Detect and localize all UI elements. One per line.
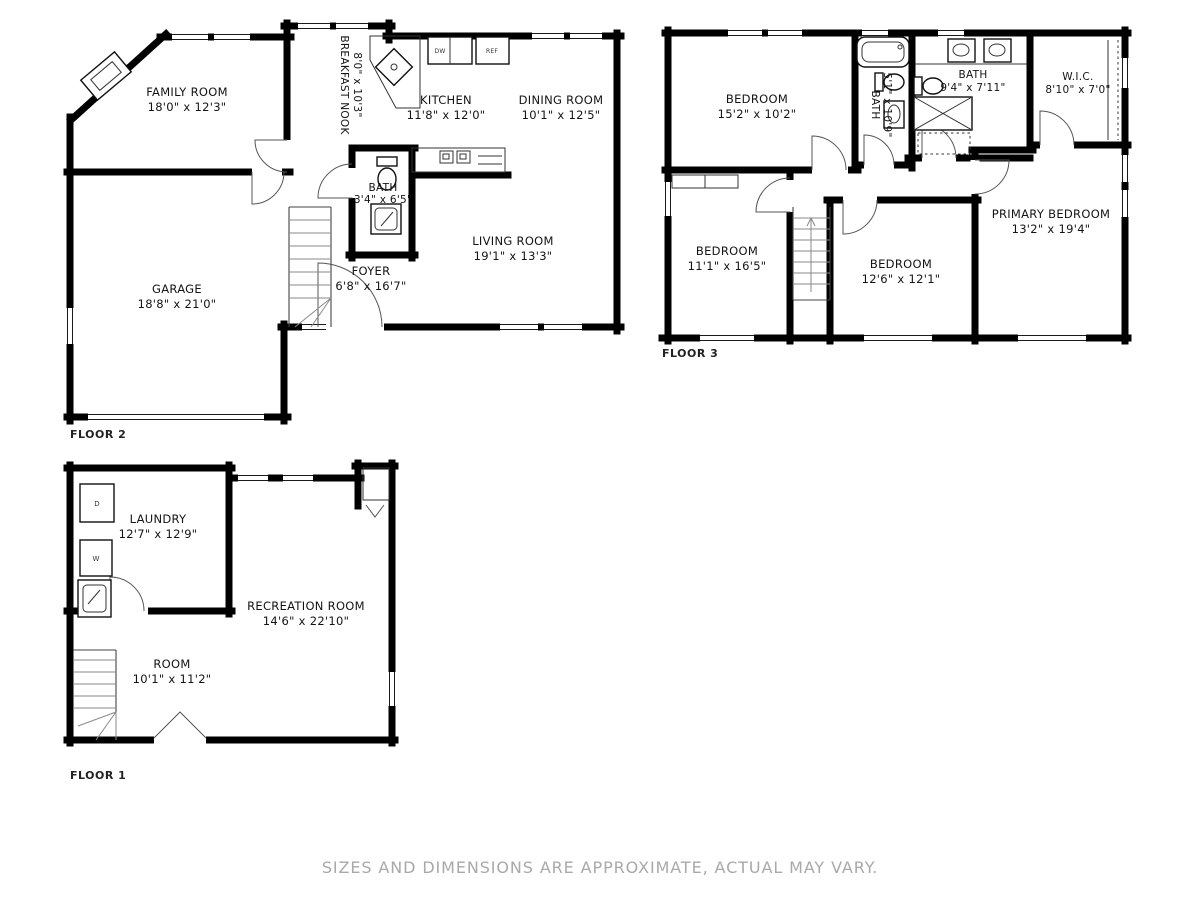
floor3-stairs [793, 207, 830, 300]
kitchen-corner-counter [370, 36, 420, 108]
floor1-windows [238, 476, 395, 707]
dryer-label: D [94, 500, 100, 508]
toilet-icon [914, 77, 922, 95]
vanity-sink-icon [984, 39, 1011, 62]
bath-small-dims: 5'1" x 10'9" [881, 72, 893, 137]
floor1-stairs [73, 650, 116, 740]
refrigerator-icon: REF [476, 37, 509, 64]
refrigerator-label: REF [486, 48, 498, 55]
bath-large-name: BATH [958, 69, 987, 81]
vanity-sink-icon [948, 39, 975, 62]
garage-name: GARAGE [152, 282, 202, 296]
floorplan-page: DW REF FAMILY ROOM 18'0" x 12'3" BREAKFA… [0, 0, 1200, 900]
bedroom2-dims: 11'1" x 16'5" [688, 259, 767, 273]
washer-label: W [92, 555, 99, 563]
dining-room-dims: 10'1" x 12'5" [522, 108, 601, 122]
washer-icon: W [80, 540, 112, 576]
toilet-icon [377, 157, 397, 166]
laundry-name: LAUNDRY [130, 512, 187, 526]
room-dims: 10'1" x 11'2" [133, 672, 212, 686]
family-room-dims: 18'0" x 12'3" [148, 100, 227, 114]
floor3-label: FLOOR 3 [662, 347, 718, 360]
foyer-name: FOYER [352, 264, 391, 278]
wic-dims: 8'10" x 7'0" [1045, 84, 1110, 96]
room-name: ROOM [153, 657, 190, 671]
shower-icon [914, 97, 972, 130]
dining-room-name: DINING ROOM [519, 93, 604, 107]
bath-large-dims: 9'4" x 7'11" [940, 82, 1005, 94]
wic-name: W.I.C. [1062, 71, 1093, 83]
dishwasher-label: DW [435, 48, 446, 55]
living-room-dims: 19'1" x 13'3" [474, 249, 553, 263]
bedroom3-name: BEDROOM [870, 257, 932, 271]
dishwasher-icon: DW [428, 37, 472, 64]
hall-closet [918, 133, 970, 154]
floor2-windows [68, 24, 603, 420]
bedroom2-name: BEDROOM [696, 244, 758, 258]
bath2-name: BATH [368, 182, 397, 194]
kitchen-dims: 11'8" x 12'0" [407, 108, 486, 122]
laundry-dims: 12'7" x 12'9" [119, 527, 198, 541]
fireplace-icon [81, 52, 131, 100]
floor3-labels: BEDROOM 15'2" x 10'2" BATH 5'1" x 10'9" … [662, 69, 1111, 360]
bath-small-name: BATH [869, 90, 881, 119]
bedroom1-dims: 15'2" x 10'2" [718, 107, 797, 121]
living-room-name: LIVING ROOM [472, 234, 554, 248]
floor2-stairs [289, 207, 331, 327]
floorplan-canvas: DW REF FAMILY ROOM 18'0" x 12'3" BREAKFA… [0, 0, 1200, 900]
kitchen-name: KITCHEN [420, 93, 472, 107]
primary-bedroom-dims: 13'2" x 19'4" [1012, 222, 1091, 236]
foyer-dims: 6'8" x 16'7" [335, 279, 406, 293]
garage-dims: 18'8" x 21'0" [138, 297, 217, 311]
recreation-room-dims: 14'6" x 22'10" [263, 614, 349, 628]
floor3-plan: BEDROOM 15'2" x 10'2" BATH 5'1" x 10'9" … [662, 30, 1128, 360]
breakfast-nook-dims: 8'0" x 10'3" [351, 52, 363, 117]
bath2-dims: 3'4" x 6'5" [354, 194, 412, 206]
family-room-name: FAMILY ROOM [146, 85, 228, 99]
bedroom3-dims: 12'6" x 12'1" [862, 272, 941, 286]
laundry-sink-icon [78, 580, 111, 617]
floor2-label: FLOOR 2 [70, 428, 126, 441]
floor2-plan: DW REF FAMILY ROOM 18'0" x 12'3" BREAKFA… [67, 23, 621, 441]
dryer-icon: D [80, 484, 114, 522]
recreation-room-name: RECREATION ROOM [247, 599, 365, 613]
floor2-labels: FAMILY ROOM 18'0" x 12'3" BREAKFAST NOOK… [70, 35, 603, 441]
breakfast-nook-name: BREAKFAST NOOK [338, 35, 350, 135]
bedroom1-name: BEDROOM [726, 92, 788, 106]
disclaimer-text: SIZES AND DIMENSIONS ARE APPROXIMATE, AC… [322, 858, 878, 877]
stove-icon [412, 148, 505, 172]
entry-alcove [363, 468, 389, 517]
floor1-plan: D W LAUNDRY 12'7" x 12'9" RECREATION ROO… [67, 463, 395, 782]
primary-bedroom-name: PRIMARY BEDROOM [992, 207, 1111, 221]
bedroom2-closet [672, 175, 738, 188]
floor1-label: FLOOR 1 [70, 769, 126, 782]
bathtub-icon [857, 37, 909, 67]
